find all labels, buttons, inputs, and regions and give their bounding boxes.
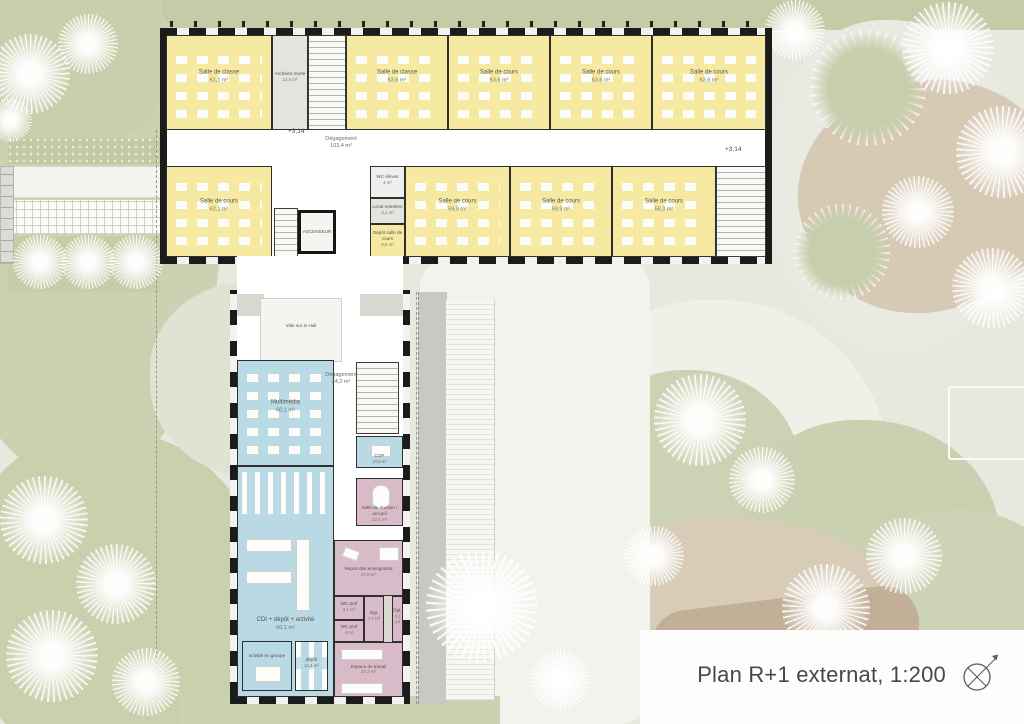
level-marker: +3,14	[288, 128, 304, 135]
counter	[296, 539, 310, 611]
facade-east	[403, 290, 410, 697]
room-label: Espace de travail27,2 m²	[335, 664, 402, 676]
group-table	[255, 666, 281, 682]
room-label: Salle de cours58,3 m²	[613, 199, 715, 214]
north-arrow-icon	[958, 652, 1002, 701]
landscape-planting-band	[8, 138, 160, 164]
room-classroom: Salle de classe63,6 m²	[346, 35, 448, 130]
room-label: COP10,8 m²	[357, 453, 402, 465]
reading-table	[246, 539, 292, 552]
room-classroom: Salle de cours58,3 m²	[612, 166, 716, 257]
elevator-label: ASCENSEUR	[301, 229, 333, 235]
room-classroom: Salle de cours63,6 m²	[550, 35, 652, 130]
staircase-hall	[274, 208, 298, 257]
room-cdi: CDI + dépôt + activité60,1 m² activité e…	[237, 466, 334, 697]
room-label: Local entretien3,1 m²	[371, 204, 404, 216]
room-classroom: Salle de cours62,1 m²	[166, 166, 272, 257]
reading-table	[246, 571, 292, 584]
room-label: CDI + dépôt + activité60,1 m²	[238, 617, 333, 632]
room-wc-staff: WC prof4 m²	[334, 620, 364, 642]
room-label: WC prof3,1 m²	[335, 601, 363, 613]
room-workspace: Espace de travail27,2 m²	[334, 642, 403, 697]
room-clearance: Dgt.4,1 m²	[392, 596, 403, 642]
room-label: Multimédia60,1 m²	[238, 399, 333, 414]
work-table	[341, 683, 383, 694]
room-wc-students: WC élèves4 m²	[370, 166, 405, 198]
room-label: Salle de cours59,9 m²	[511, 199, 611, 214]
shaft-small	[384, 596, 392, 642]
room-label: Salle de cours63,6 m²	[653, 69, 765, 84]
colonnade-north	[170, 21, 760, 27]
dashed-site-line-left	[156, 130, 157, 704]
room-label: Repos des enseignants27,0 m²	[335, 566, 402, 578]
dashed-site-line-right	[416, 292, 417, 704]
work-table	[341, 649, 383, 660]
facade-south	[230, 697, 410, 704]
room-label: Salle de classe63,6 m²	[347, 69, 447, 84]
corridor-label: Dégagement103,4 m²	[310, 136, 372, 150]
bookshelf-pattern	[242, 472, 330, 514]
room-archives: Archives morte14,5 m²	[272, 35, 308, 130]
room-label: Salle de réunion / accueil13,4 m²	[357, 505, 402, 523]
room-label: Salle de cours63,6 m²	[449, 69, 549, 84]
level-marker: +3,14	[725, 146, 741, 153]
room-multimedia: Multimédia60,1 m²	[237, 360, 334, 466]
room-label: Salle de cours63,6 m²	[551, 69, 651, 84]
shaft-east	[360, 294, 403, 316]
landscape-retaining-wall	[0, 166, 14, 264]
corridor-label: Dégagement34,2 m²	[324, 372, 358, 386]
landscape-ramp-path	[8, 166, 162, 198]
room-classroom: Salle de cours63,6 m²	[652, 35, 766, 130]
room-storage-class: Dépôt salle de cours9,5 m²	[370, 224, 405, 257]
room-label: Archives morte14,5 m²	[273, 71, 307, 83]
room-clearance: Dgt.7,7 m²	[364, 596, 384, 642]
room-label: Salle de cours59,9 m²	[406, 199, 509, 214]
terrace-band	[418, 292, 447, 704]
room-classroom: Salle de cours59,9 m²	[510, 166, 612, 257]
room-storage-cdi: dépôt12,4 m²	[295, 641, 328, 691]
staircase-cdi	[356, 362, 399, 434]
room-cleaning: Local entretien3,1 m²	[370, 198, 405, 224]
staircase-east	[716, 166, 766, 257]
facade-west	[230, 290, 237, 697]
room-cop: COP10,8 m²	[356, 436, 403, 468]
room-label: Salle de classe61,1 m²	[167, 69, 271, 84]
room-wc-staff: WC prof3,1 m²	[334, 596, 364, 620]
facade-north	[160, 28, 772, 35]
room-meeting: Salle de réunion / accueil13,4 m²	[356, 478, 403, 526]
title-block: Plan R+1 externat, 1:200	[640, 630, 1024, 724]
landscape-pergola-grid	[8, 200, 160, 234]
sports-court	[948, 386, 1024, 460]
plan-title: Plan R+1 externat, 1:200	[697, 662, 946, 688]
landscape-tree-band	[8, 236, 160, 292]
deck-band	[446, 300, 495, 700]
room-label: WC prof4 m²	[335, 624, 363, 636]
table	[379, 547, 399, 561]
room-label: Dépôt salle de cours9,5 m²	[371, 230, 404, 248]
landscape-green-topleft	[0, 0, 162, 142]
room-classroom: Salle de cours63,6 m²	[448, 35, 550, 130]
room-label: Salle de cours62,1 m²	[167, 199, 271, 214]
room-label: activité en groupe	[243, 653, 291, 659]
room-label: Dgt.7,7 m²	[365, 611, 383, 623]
room-group-activity: activité en groupe	[242, 641, 292, 691]
room-staff-rest: Repos des enseignants27,0 m²	[334, 540, 403, 596]
facade-east	[765, 28, 772, 264]
room-label: WC élèves4 m²	[371, 174, 404, 186]
room-classroom: Salle de classe61,1 m²	[166, 35, 272, 130]
room-classroom: Salle de cours59,9 m²	[405, 166, 510, 257]
wing-classrooms: Salle de classe61,1 m² Archives morte14,…	[160, 28, 772, 264]
elevator: ASCENSEUR	[298, 210, 336, 254]
void-over-hall: Vide sur le Hall	[260, 298, 342, 362]
room-label: Dgt.4,1 m²	[393, 608, 402, 625]
room-label: dépôt12,4 m²	[296, 657, 327, 669]
void-label: Vide sur le Hall	[261, 323, 341, 329]
sofa	[342, 547, 360, 562]
site-plan: Salle de classe61,1 m² Archives morte14,…	[0, 0, 1024, 724]
staircase-west	[308, 35, 346, 130]
wing-cdi: Vide sur le Hall Dégagement34,2 m² Multi…	[230, 256, 410, 704]
